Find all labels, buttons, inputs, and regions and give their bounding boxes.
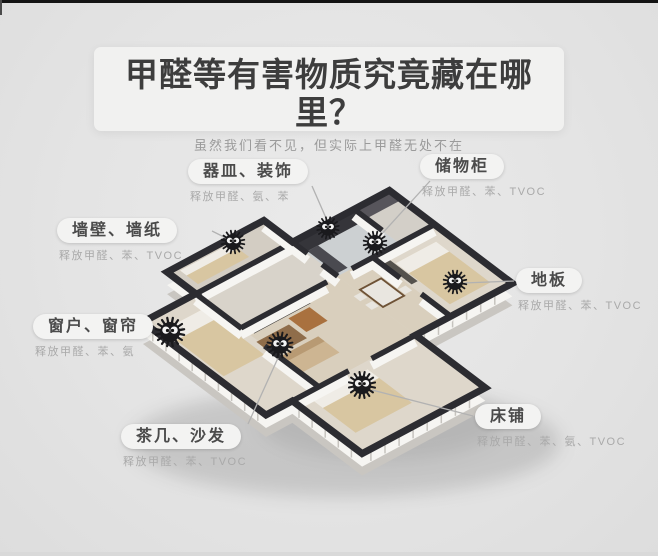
callout-wall-detail: 释放甲醛、苯、TVOC bbox=[59, 247, 183, 263]
callout-sofa-title: 茶几、沙发 bbox=[121, 424, 241, 449]
formaldehyde-infographic: 甲醛等有害物质究竟藏在哪里？ 虽然我们看不见，但实际上甲醛无处不在 器皿、装饰 … bbox=[0, 0, 658, 556]
callout-bed-detail: 释放甲醛、苯、氨、TVOC bbox=[477, 433, 626, 449]
callout-vessels-detail: 释放甲醛、氨、苯 bbox=[190, 188, 308, 204]
callout-storage-detail: 释放甲醛、苯、TVOC bbox=[422, 183, 546, 199]
callout-window-title: 窗户、窗帘 bbox=[33, 314, 153, 339]
title-panel: 甲醛等有害物质究竟藏在哪里？ 虽然我们看不见，但实际上甲醛无处不在 bbox=[94, 47, 564, 131]
callout-vessels-title: 器皿、装饰 bbox=[188, 159, 308, 184]
callout-sofa: 茶几、沙发 释放甲醛、苯、TVOC bbox=[121, 424, 247, 469]
bottom-border-bar bbox=[0, 552, 658, 556]
page-subtitle: 虽然我们看不见，但实际上甲醛无处不在 bbox=[94, 135, 564, 154]
page-title: 甲醛等有害物质究竟藏在哪里？ bbox=[94, 56, 564, 132]
left-edge-mark bbox=[0, 0, 2, 15]
callout-bed: 床铺 释放甲醛、苯、氨、TVOC bbox=[475, 404, 626, 449]
callout-wall-title: 墙壁、墙纸 bbox=[57, 218, 177, 243]
callout-storage-title: 储物柜 bbox=[420, 154, 504, 179]
callout-sofa-detail: 释放甲醛、苯、TVOC bbox=[123, 453, 247, 469]
callout-window-detail: 释放甲醛、苯、氨 bbox=[35, 343, 153, 359]
callout-vessels: 器皿、装饰 释放甲醛、氨、苯 bbox=[188, 159, 308, 204]
top-border-bar bbox=[0, 0, 658, 3]
callout-wall: 墙壁、墙纸 释放甲醛、苯、TVOC bbox=[57, 218, 183, 263]
callout-bed-title: 床铺 bbox=[475, 404, 541, 429]
callout-floor: 地板 释放甲醛、苯、TVOC bbox=[516, 268, 642, 313]
callout-floor-title: 地板 bbox=[516, 268, 582, 293]
callout-window: 窗户、窗帘 释放甲醛、苯、氨 bbox=[33, 314, 153, 359]
callout-storage: 储物柜 释放甲醛、苯、TVOC bbox=[420, 154, 546, 199]
callout-floor-detail: 释放甲醛、苯、TVOC bbox=[518, 297, 642, 313]
